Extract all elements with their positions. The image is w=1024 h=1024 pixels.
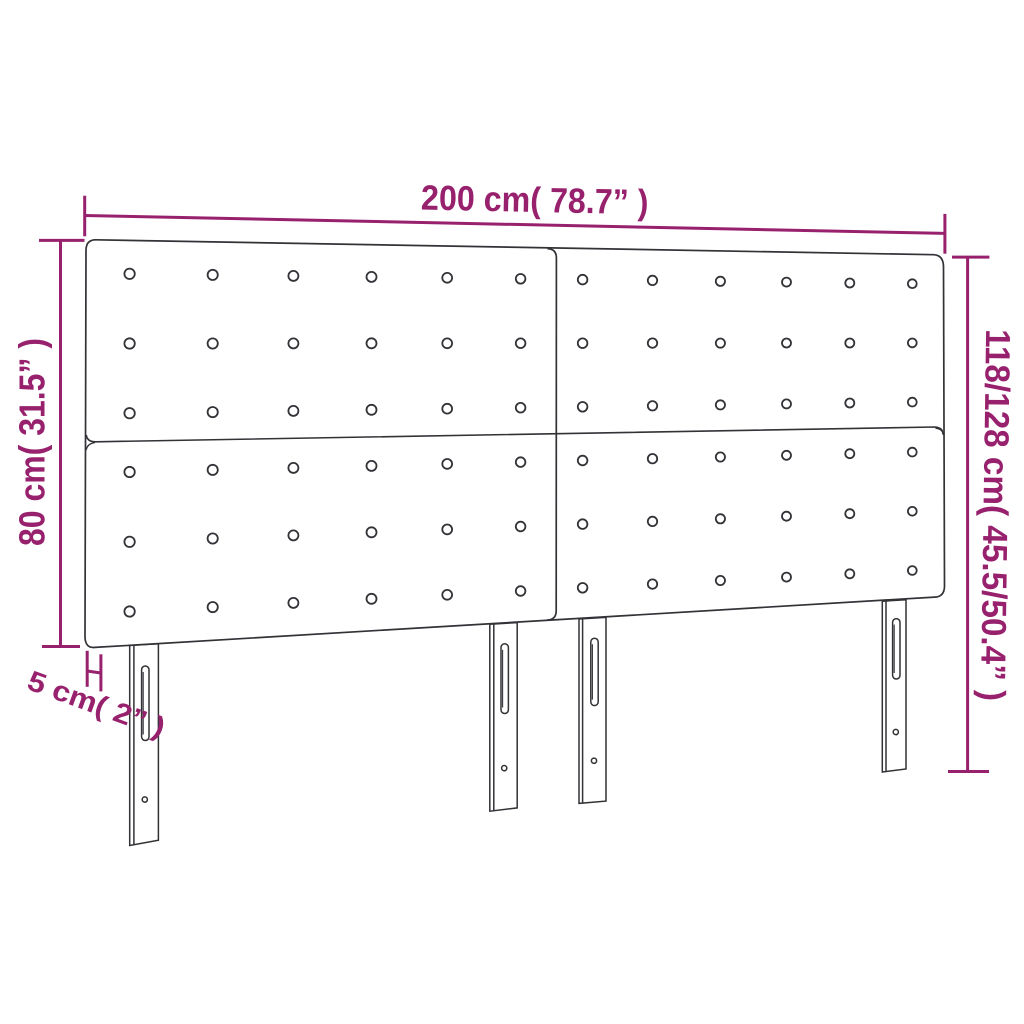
svg-text:118/128 cm( 45.5/50.4” ): 118/128 cm( 45.5/50.4” )	[973, 329, 1017, 702]
svg-text:200 cm( 78.7” ): 200 cm( 78.7” )	[421, 179, 649, 223]
svg-text:80 cm( 31.5” ): 80 cm( 31.5” )	[13, 338, 53, 546]
